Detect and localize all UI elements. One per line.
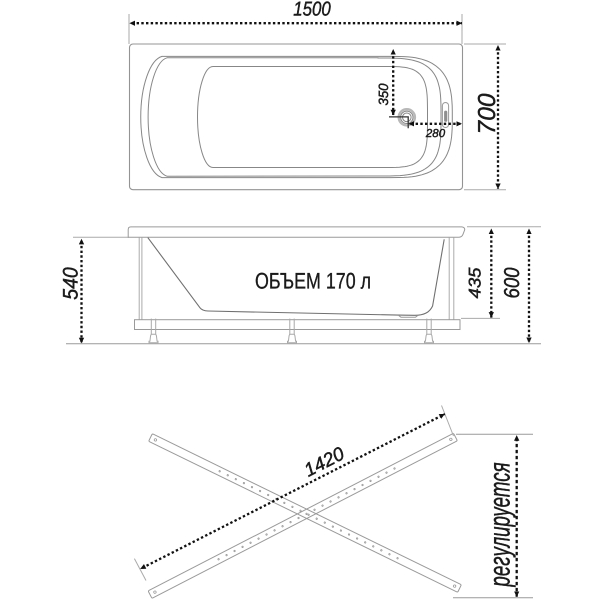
svg-text:700: 700 <box>474 93 501 134</box>
svg-text:350: 350 <box>376 83 391 105</box>
svg-text:540: 540 <box>60 267 83 300</box>
svg-text:регулируется: регулируется <box>485 462 517 587</box>
svg-text:ОБЪЕМ 170 л: ОБЪЕМ 170 л <box>255 269 371 294</box>
svg-text:600: 600 <box>500 267 524 298</box>
svg-text:1500: 1500 <box>293 0 331 21</box>
svg-text:280: 280 <box>425 128 446 140</box>
svg-text:435: 435 <box>466 267 485 299</box>
